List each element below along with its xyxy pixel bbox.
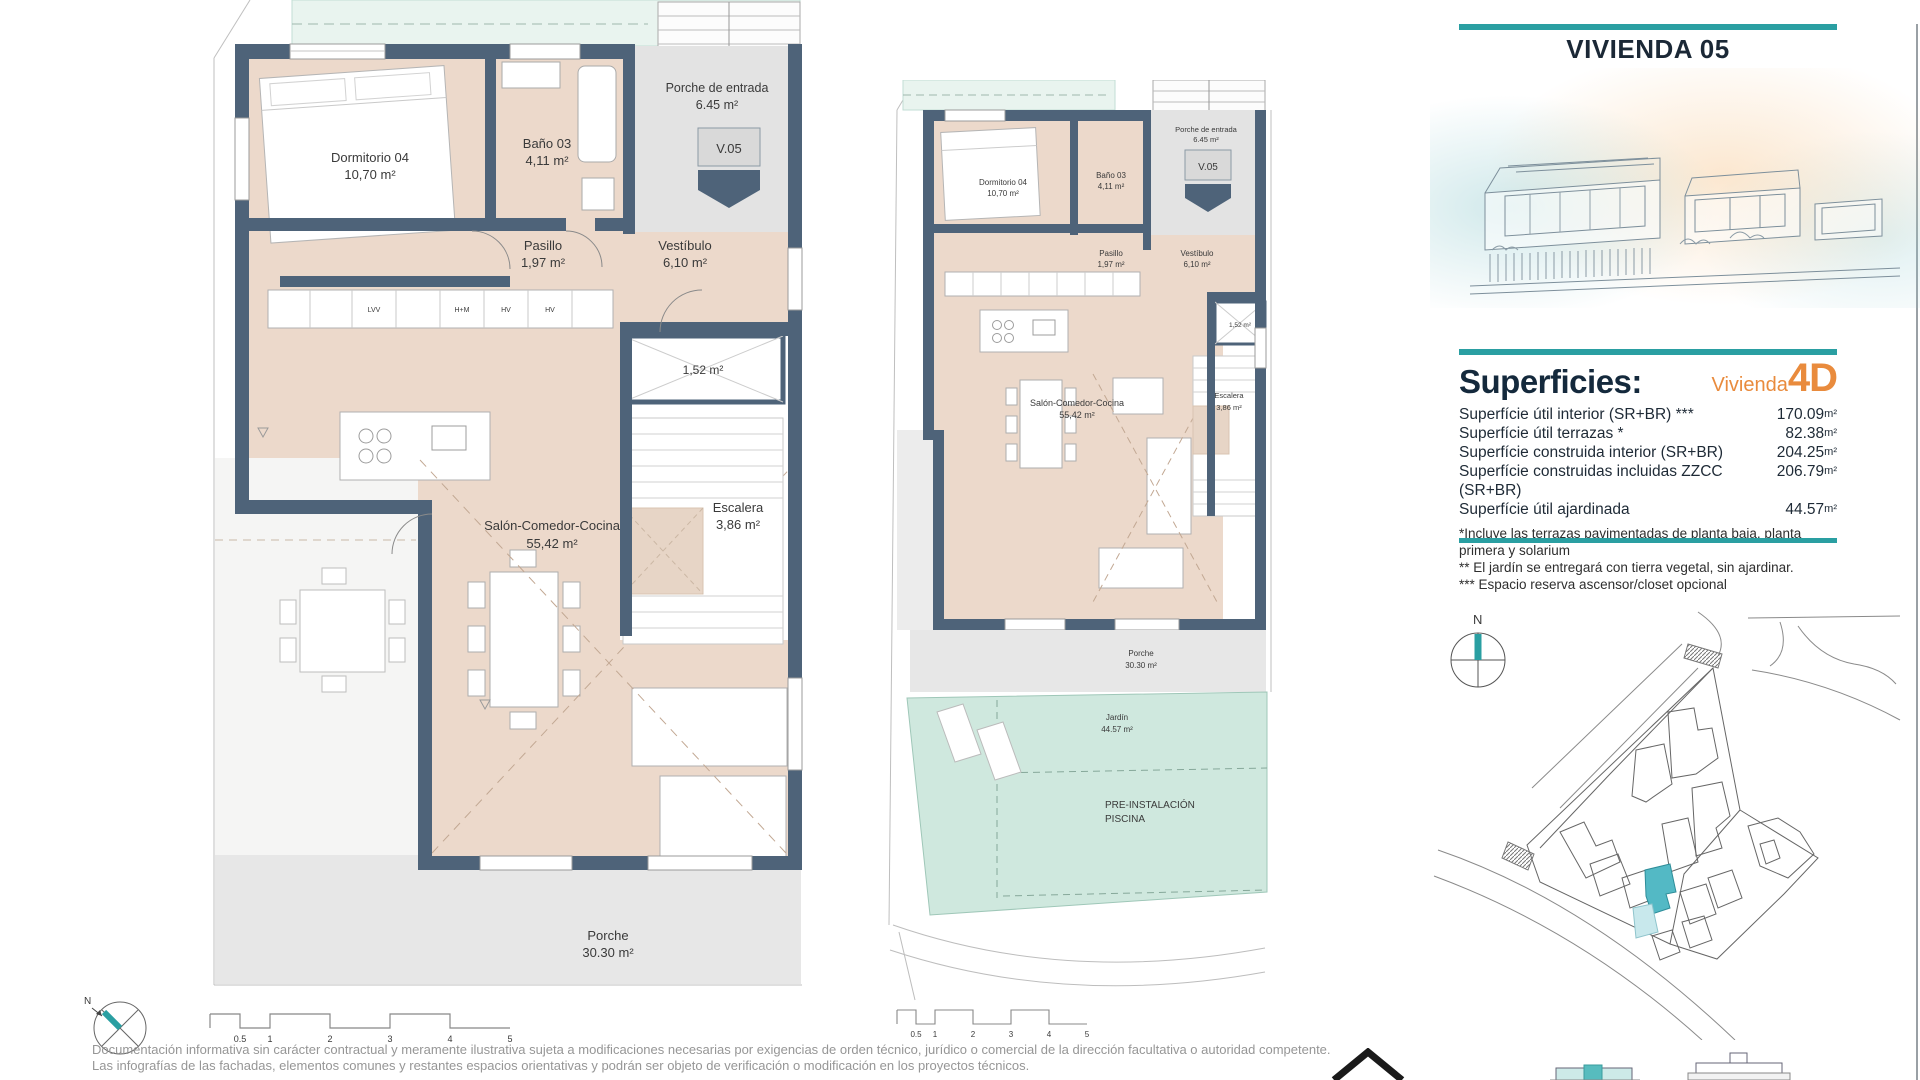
roads <box>1434 612 1900 1040</box>
north-label: N <box>1473 612 1482 627</box>
room-area: 44.57 m² <box>1101 725 1133 734</box>
room-label: Dormitorio 04 <box>979 178 1028 187</box>
scale-tick: 5 <box>1085 1030 1090 1039</box>
room-area: 10,70 m² <box>344 167 396 182</box>
room-area: 6,10 m² <box>663 255 708 270</box>
elevation-icon-teal <box>1550 1065 1640 1080</box>
kitchen-unit-label: LVV <box>368 307 381 314</box>
vivienda-label: Vivienda <box>1712 374 1788 396</box>
kitchen-counter <box>945 272 1140 296</box>
room-area: 4,11 m² <box>525 153 569 168</box>
fence-slats <box>1490 248 1650 282</box>
disclaimer-line: Documentación informativa sin carácter c… <box>92 1042 1342 1058</box>
room-label: Baño 03 <box>523 136 571 151</box>
superficies-row: Superfície construidas incluidas ZZCC (S… <box>1459 462 1837 500</box>
room-label: Pasillo <box>524 238 562 253</box>
row-label: Superfície construida interior (SR+BR) <box>1459 443 1723 462</box>
room-label: Baño 03 <box>1096 171 1126 180</box>
stairs <box>1193 356 1265 516</box>
disclaimer-line: Las infografías de las fachadas, element… <box>92 1058 1342 1074</box>
row-unit: m² <box>1824 446 1837 458</box>
row-unit: m² <box>1824 427 1837 439</box>
footnote: ** El jardín se entregará con tierra veg… <box>1459 559 1837 576</box>
room-area: 55,42 m² <box>526 536 578 551</box>
room-area: 6.45 m² <box>696 98 738 112</box>
footnotes: *Incluye las terrazas pavimentadas de pl… <box>1459 525 1837 593</box>
north-label: N <box>84 996 91 1007</box>
row-value: 82.38 <box>1785 425 1824 442</box>
pool-label: PRE-INSTALACIÓN <box>1105 798 1195 811</box>
row-value: 204.25 <box>1777 444 1824 461</box>
superficies-table: Superfície útil interior (SR+BR) ***170.… <box>1459 405 1837 519</box>
kitchen-island <box>980 310 1068 352</box>
pool-label: PISCINA <box>1105 814 1145 825</box>
kitchen-island <box>340 412 490 480</box>
scale-tick: 3 <box>1009 1030 1014 1039</box>
room-area: 55,42 m² <box>1059 410 1095 420</box>
page-title: VIVIENDA 05 <box>1459 34 1837 65</box>
kitchen-unit-label: H+M <box>455 307 470 314</box>
room-label: Jardín <box>1106 713 1128 722</box>
room-area: 3,86 m² <box>716 517 761 532</box>
superficies-heading: Superficies: <box>1459 363 1642 401</box>
room-label: Porche <box>587 928 628 943</box>
room-area: 1,52 m² <box>1229 322 1252 329</box>
kitchen-unit-label: HV <box>501 307 511 314</box>
footnote: *** Espacio reserva ascensor/closet opci… <box>1459 576 1837 593</box>
superficies-block: Superficies: Vivienda4D Superfície útil … <box>1459 356 1837 593</box>
room-area: 10,70 m² <box>987 189 1019 198</box>
row-unit: m² <box>1824 465 1837 477</box>
scale-tick: 1 <box>933 1030 938 1039</box>
bed-icon <box>941 128 1040 221</box>
scale-tick: 0.5 <box>910 1030 922 1039</box>
dining-table <box>1006 380 1076 468</box>
room-label: Porche de entrada <box>1175 125 1238 134</box>
elevation-key-icons <box>1548 1052 1920 1080</box>
panel-top-rule <box>1459 24 1837 30</box>
row-unit: m² <box>1824 408 1837 420</box>
room-area: 3,86 m² <box>1216 403 1242 412</box>
scale-tick: 2 <box>971 1030 976 1039</box>
superficies-row: Superfície útil interior (SR+BR) ***170.… <box>1459 405 1837 424</box>
elevation-icon-grey <box>1688 1053 1790 1080</box>
superficies-top-rule <box>1459 349 1837 355</box>
house-footprints <box>1560 708 1814 960</box>
room-label: Escalera <box>1214 391 1244 400</box>
site-plan: N <box>1430 592 1920 1040</box>
vivienda-code: 4D <box>1788 356 1837 400</box>
row-label: Superfície útil interior (SR+BR) *** <box>1459 405 1694 424</box>
row-unit: m² <box>1824 503 1837 515</box>
room-label: Porche <box>1128 649 1154 658</box>
row-value: 44.57 <box>1785 501 1824 518</box>
room-area: 4,11 m² <box>1098 182 1125 191</box>
v05-label: V.05 <box>716 141 742 156</box>
superficies-row: Superfície útil ajardinada44.57m² <box>1459 500 1837 519</box>
room-area: 1,97 m² <box>521 255 566 270</box>
room-label: Vestíbulo <box>658 238 712 253</box>
scale-bar-left: 0.5 1 2 3 4 5 <box>205 1002 525 1047</box>
first-floor-plan: V.05 Dormitorio 04 10,70 m² Baño 03 4,11… <box>885 80 1290 1010</box>
sketch-lines <box>1430 68 1920 308</box>
scale-bar-middle: 0.5 1 2 3 4 5 <box>893 1000 1098 1042</box>
room-label: Salón-Comedor-Cocina <box>484 518 621 533</box>
room-area: 6,10 m² <box>1183 260 1210 269</box>
row-label: Superfície útil terrazas * <box>1459 424 1624 443</box>
room-label: Dormitorio 04 <box>331 150 409 165</box>
ground-floor-plan: LVV H+M HV HV <box>180 0 830 1005</box>
room-area: 1,52 m² <box>683 363 724 377</box>
vivienda-tag: Vivienda4D <box>1712 356 1838 401</box>
floorplan-sheet: { "page": { "title": "VIVIENDA 05" }, "r… <box>0 0 1920 1080</box>
driveway-hatch <box>1502 644 1722 870</box>
superficies-row: Superfície útil terrazas *82.38m² <box>1459 424 1837 443</box>
room-label: Salón-Comedor-Cocina <box>1030 398 1124 408</box>
room-label: Vestíbulo <box>1181 249 1214 258</box>
room-area: 1,97 m² <box>1097 260 1124 269</box>
kitchen-unit-label: HV <box>545 307 555 314</box>
disclaimer: Documentación informativa sin carácter c… <box>92 1042 1342 1074</box>
site-compass: N <box>1451 612 1505 687</box>
scale-tick: 4 <box>1047 1030 1052 1039</box>
room-label: Pasillo <box>1099 249 1123 258</box>
kitchen-counter: LVV H+M HV HV <box>268 290 613 328</box>
room-area: 6.45 m² <box>1193 135 1219 144</box>
room-area: 30.30 m² <box>1125 661 1157 670</box>
row-value: 206.79 <box>1777 463 1824 480</box>
row-label: Superfície construidas incluidas ZZCC (S… <box>1459 462 1777 500</box>
v05-label: V.05 <box>1198 162 1218 173</box>
row-value: 170.09 <box>1777 406 1824 423</box>
logo-chevron-icon <box>1330 1048 1420 1080</box>
superficies-row: Superfície construida interior (SR+BR)20… <box>1459 443 1837 462</box>
rear-porch-area <box>215 855 801 984</box>
room-area: 30.30 m² <box>582 945 634 960</box>
road-lines <box>890 925 1265 1000</box>
superficies-bottom-rule <box>1459 538 1837 543</box>
building-sketch <box>1430 68 1920 308</box>
rear-porch-area <box>910 630 1266 692</box>
room-label: Porche de entrada <box>666 81 769 95</box>
side-exterior <box>897 430 933 630</box>
room-label: Escalera <box>713 500 764 515</box>
row-label: Superfície útil ajardinada <box>1459 500 1630 519</box>
